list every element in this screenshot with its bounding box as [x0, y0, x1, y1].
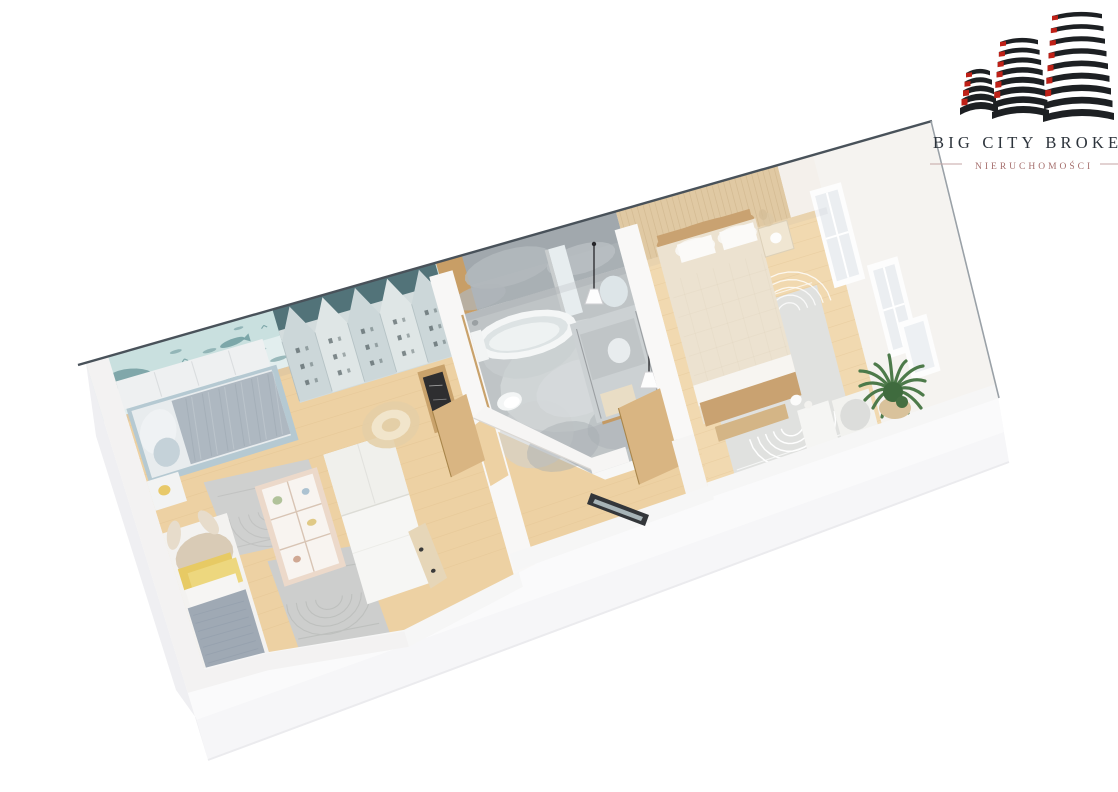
svg-text:NIERUCHOMOŚCI: NIERUCHOMOŚCI	[975, 160, 1093, 172]
svg-text:BIG CITY BROKER: BIG CITY BROKER	[933, 133, 1118, 152]
